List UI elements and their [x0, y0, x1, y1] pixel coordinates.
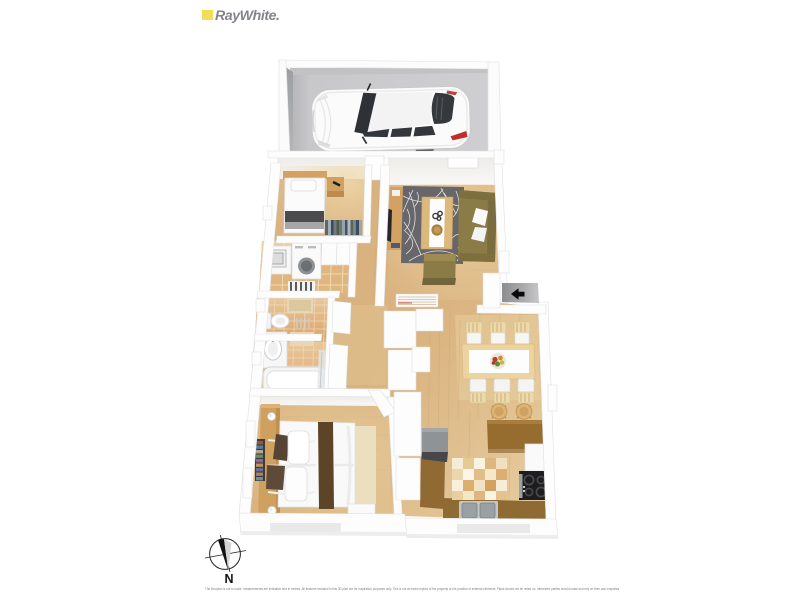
- svg-text:The floorplan is not to scale,: The floorplan is not to scale, measureme…: [205, 587, 620, 591]
- svg-text:RayWhite.: RayWhite.: [215, 8, 280, 24]
- svg-text:N: N: [224, 572, 233, 586]
